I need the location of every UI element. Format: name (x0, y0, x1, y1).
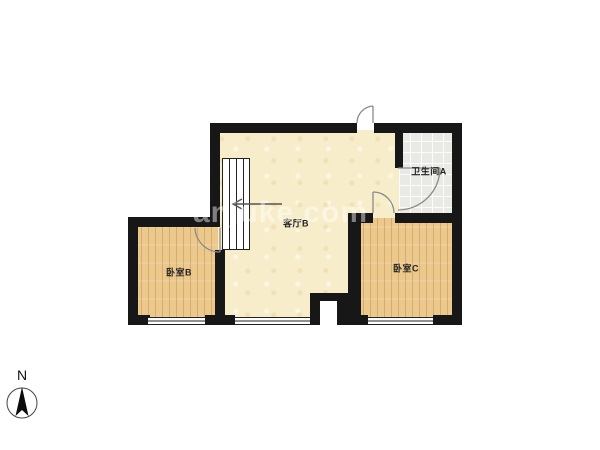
floor-plan: 客厅B 卫生间A 卧室B 卧室C anjuke.com N (0, 0, 600, 450)
window-bedroom-b (148, 317, 205, 325)
north-label: N (17, 367, 27, 383)
bedroom-c-label: 卧室C (393, 262, 419, 275)
wall-top-left (210, 123, 357, 133)
entry-channel (320, 301, 337, 334)
wall-bottom-pier-1 (205, 315, 235, 325)
entry-door-arc (357, 106, 373, 123)
wall-bedroom-b-left (128, 217, 138, 325)
bedroom-b-label: 卧室B (166, 266, 192, 279)
wall-right (452, 123, 462, 325)
watermark: anjuke.com (193, 196, 368, 230)
bathroom-label: 卫生间A (411, 165, 447, 178)
window-living-room (235, 317, 310, 325)
north-compass-icon (7, 387, 37, 418)
wall-bottom-pier-2 (361, 315, 368, 325)
window-bedroom-c (368, 317, 433, 325)
wall-top-right (374, 123, 462, 133)
wall-bathroom-left (395, 130, 403, 168)
wall-bedroom-b-right (215, 250, 225, 325)
wall-bathroom-bottom (395, 213, 462, 223)
wall-bottom-corner-left (128, 315, 150, 325)
wall-bottom-corner-right (433, 315, 462, 325)
